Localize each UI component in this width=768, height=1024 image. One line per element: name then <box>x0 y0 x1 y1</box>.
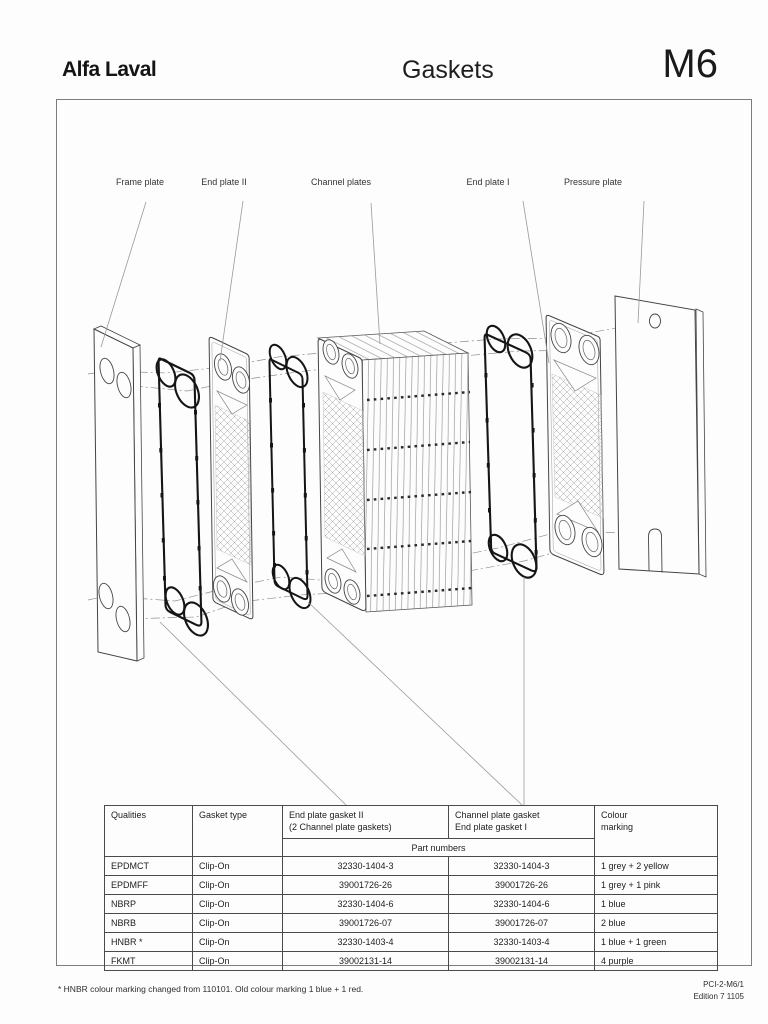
part-number-cell: 32330-1404-3 <box>283 857 449 876</box>
document-page: Alfa Laval Gaskets M6 <box>0 0 768 1024</box>
table-row: FKMT Clip-On 39002131-14 39002131-14 4 p… <box>105 952 718 971</box>
quality-cell: EPDMFF <box>105 876 193 895</box>
part-number-cell: 32330-1403-4 <box>449 933 595 952</box>
gasket-type-cell: Clip-On <box>193 933 283 952</box>
label-channel-plates: Channel plates <box>311 177 371 187</box>
colour-marking-cell: 1 grey + 2 yellow <box>595 857 718 876</box>
page-title: Gaskets <box>402 56 494 85</box>
part-number-cell: 39001726-07 <box>449 914 595 933</box>
label-end-plate-1: End plate I <box>466 177 509 187</box>
colour-marking-cell: 2 blue <box>595 914 718 933</box>
document-id-block: PCI-2-M6/1 Edition 7 1105 <box>693 979 744 1002</box>
gasket-type-cell: Clip-On <box>193 857 283 876</box>
part-number-cell: 32330-1404-6 <box>283 895 449 914</box>
table-row: EPDMFF Clip-On 39001726-26 39001726-26 1… <box>105 876 718 895</box>
table-row: NBRB Clip-On 39001726-07 39001726-07 2 b… <box>105 914 718 933</box>
alfa-laval-logo: Alfa Laval <box>62 58 156 82</box>
pressure-plate-drawing <box>615 296 706 577</box>
channel-plate-gasket-drawing <box>266 342 314 611</box>
col-header-end-plate-gasket-2: End plate gasket II (2 Channel plate gas… <box>283 806 449 839</box>
part-number-cell: 39002131-14 <box>449 952 595 971</box>
quality-cell: EPDMCT <box>105 857 193 876</box>
colour-marking-cell: 4 purple <box>595 952 718 971</box>
col-header-channel-plate-gasket: Channel plate gasket End plate gasket I <box>449 806 595 839</box>
part-number-cell: 39002131-14 <box>283 952 449 971</box>
edition-label: Edition 7 1105 <box>693 991 744 1003</box>
colour-marking-cell: 1 blue <box>595 895 718 914</box>
model-designation: M6 <box>662 42 718 87</box>
quality-cell: FKMT <box>105 952 193 971</box>
frame-plate-drawing <box>94 326 144 661</box>
end-plate-1-gasket-drawing <box>483 323 541 582</box>
end-plate-1-drawing <box>546 315 605 574</box>
gasket-part-table: Qualities Gasket type End plate gasket I… <box>104 805 718 971</box>
part-number-cell: 32330-1404-6 <box>449 895 595 914</box>
part-number-cell: 39001726-26 <box>449 876 595 895</box>
table-row: EPDMCT Clip-On 32330-1404-3 32330-1404-3… <box>105 857 718 876</box>
table-row: NBRP Clip-On 32330-1404-6 32330-1404-6 1… <box>105 895 718 914</box>
gasket-type-cell: Clip-On <box>193 876 283 895</box>
col-header-qualities: Qualities <box>105 806 193 857</box>
quality-cell: HNBR * <box>105 933 193 952</box>
end-plate-2-gasket-drawing <box>153 356 213 639</box>
quality-cell: NBRP <box>105 895 193 914</box>
hanger-hole <box>650 314 661 328</box>
col-header-gasket-type: Gasket type <box>193 806 283 857</box>
gasket-type-cell: Clip-On <box>193 914 283 933</box>
table-leader-lines <box>160 577 524 805</box>
table-row: HNBR * Clip-On 32330-1403-4 32330-1403-4… <box>105 933 718 952</box>
label-pressure-plate: Pressure plate <box>564 177 622 187</box>
part-number-cell: 39001726-26 <box>283 876 449 895</box>
gasket-type-cell: Clip-On <box>193 895 283 914</box>
quality-cell: NBRB <box>105 914 193 933</box>
colour-marking-cell: 1 grey + 1 pink <box>595 876 718 895</box>
part-number-cell: 32330-1404-3 <box>449 857 595 876</box>
table-header-row: Qualities Gasket type End plate gasket I… <box>105 806 718 839</box>
col-header-colour-marking: Colour marking <box>595 806 718 857</box>
colour-marking-cell: 1 blue + 1 green <box>595 933 718 952</box>
label-frame-plate: Frame plate <box>116 177 164 187</box>
document-code: PCI-2-M6/1 <box>693 979 744 991</box>
label-end-plate-2: End plate II <box>201 177 247 187</box>
part-number-cell: 39001726-07 <box>283 914 449 933</box>
part-number-cell: 32330-1403-4 <box>283 933 449 952</box>
part-numbers-label: Part numbers <box>283 839 595 857</box>
end-plate-2-drawing <box>209 337 253 618</box>
gasket-type-cell: Clip-On <box>193 952 283 971</box>
hnbr-footnote: * HNBR colour marking changed from 11010… <box>58 984 363 994</box>
channel-plates-drawing <box>318 331 472 612</box>
